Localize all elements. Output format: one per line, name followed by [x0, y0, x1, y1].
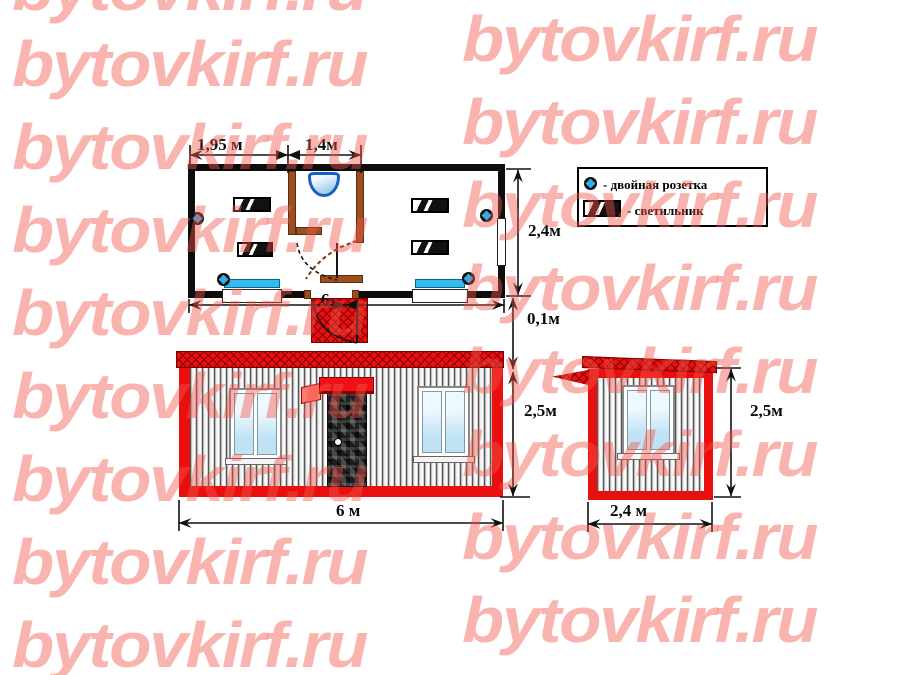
dimension-lines — [179, 145, 741, 532]
dim-label-plan-depth: 2,4м — [528, 222, 561, 239]
dim-label-front-width: 6 м — [336, 502, 360, 519]
dimension-overlay — [0, 0, 900, 675]
dim-label-front-height: 2,5м — [524, 402, 557, 419]
dim-label-room-mid: 1,4м — [305, 136, 338, 153]
dim-label-side-height: 2,5м — [750, 402, 783, 419]
watermarked-cabin-drawing: - двойная розетка - светильник — [0, 0, 900, 675]
dim-label-offset: 0,1м — [527, 310, 560, 327]
dim-label-room-left: 1,95 м — [197, 136, 243, 153]
dim-label-plan-total: 6 — [321, 291, 330, 308]
dim-label-side-width: 2,4 м — [610, 502, 647, 519]
